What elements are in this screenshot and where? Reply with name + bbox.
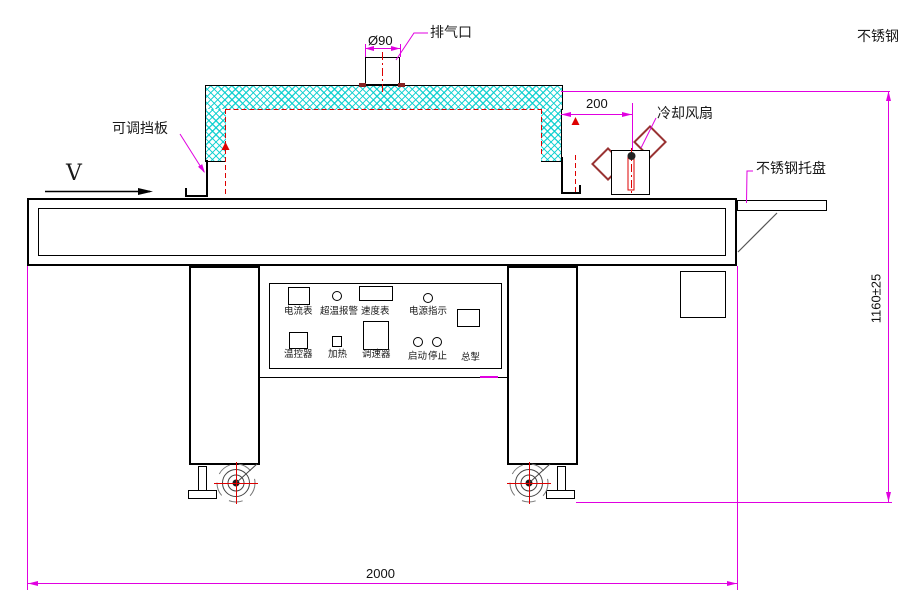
- heating-switch[interactable]: [332, 336, 342, 347]
- stainless-tray: [737, 200, 827, 211]
- diameter-dim-text: Ø90: [368, 33, 393, 48]
- power-indicator-lamp: [423, 293, 433, 303]
- chimney-base-right-mark: [398, 83, 405, 87]
- right-foot-pad: [546, 490, 575, 499]
- left-caster-wheel: [214, 462, 258, 504]
- stop-button[interactable]: [432, 337, 442, 347]
- ammeter-meter: [288, 287, 310, 305]
- right-foot-shaft: [557, 466, 566, 492]
- power-label: 电源指示: [409, 307, 447, 317]
- heating-label: 加热: [328, 350, 347, 360]
- overtemp-label: 超温报警: [320, 307, 358, 317]
- direction-arrow: [45, 188, 153, 195]
- oven-hood-right-wall: [541, 109, 562, 162]
- red-flow-arrows: [222, 117, 580, 150]
- fan-label: 冷却风扇: [657, 106, 713, 121]
- master-label: 总掣: [461, 353, 480, 363]
- start-label: 启动: [408, 352, 427, 362]
- tray-label: 不锈钢托盘: [756, 161, 826, 176]
- stop-label: 停止: [428, 352, 447, 362]
- thermostat-label: 温控器: [284, 350, 313, 360]
- length-dim-text: 2000: [366, 566, 395, 581]
- regulator-label: 调速器: [362, 350, 391, 360]
- left-leg: [189, 266, 260, 465]
- start-button[interactable]: [413, 337, 423, 347]
- right-caster-wheel: [507, 462, 551, 504]
- speedometer-label: 速度表: [361, 307, 390, 317]
- ammeter-label: 电流表: [284, 307, 313, 317]
- thermostat-meter: [289, 332, 308, 349]
- baffle-label: 可调挡板: [112, 121, 168, 136]
- left-foot-shaft: [198, 466, 207, 492]
- speed-regulator-knob[interactable]: [363, 321, 389, 350]
- adjustable-baffles: [186, 157, 580, 196]
- conveyor-belt-inner: [38, 208, 726, 256]
- oven-hood-top: [205, 85, 563, 110]
- backing-panel-bottom-edge: [260, 377, 507, 378]
- chimney-base-left-mark: [359, 83, 366, 87]
- exhaust-chimney: [365, 57, 400, 85]
- magenta-tick: [480, 376, 498, 378]
- red-dashed-lines: [226, 52, 635, 197]
- right-leg: [507, 266, 578, 465]
- overtemp-alarm-lamp: [332, 291, 342, 301]
- under-table-box: [680, 271, 726, 318]
- direction-v-label: V: [66, 161, 82, 186]
- offset-dim-text: 200: [586, 96, 608, 111]
- technical-drawing-canvas: 电流表 超温报警 速度表 电源指示 温控器 加热 调速器 启动 停止 总掣 Ø9…: [0, 0, 901, 601]
- stainless-clipped-label: 不锈钢: [857, 29, 899, 44]
- left-foot-pad: [188, 490, 217, 499]
- height-dim-text: 1160±25: [869, 269, 884, 329]
- exhaust-label: 排气口: [430, 25, 472, 40]
- speedometer-meter: [359, 286, 393, 301]
- tray-strut: [738, 213, 777, 252]
- cooling-fan-body: [611, 150, 650, 195]
- oven-hood-left-wall: [205, 109, 226, 162]
- master-switch[interactable]: [457, 309, 480, 327]
